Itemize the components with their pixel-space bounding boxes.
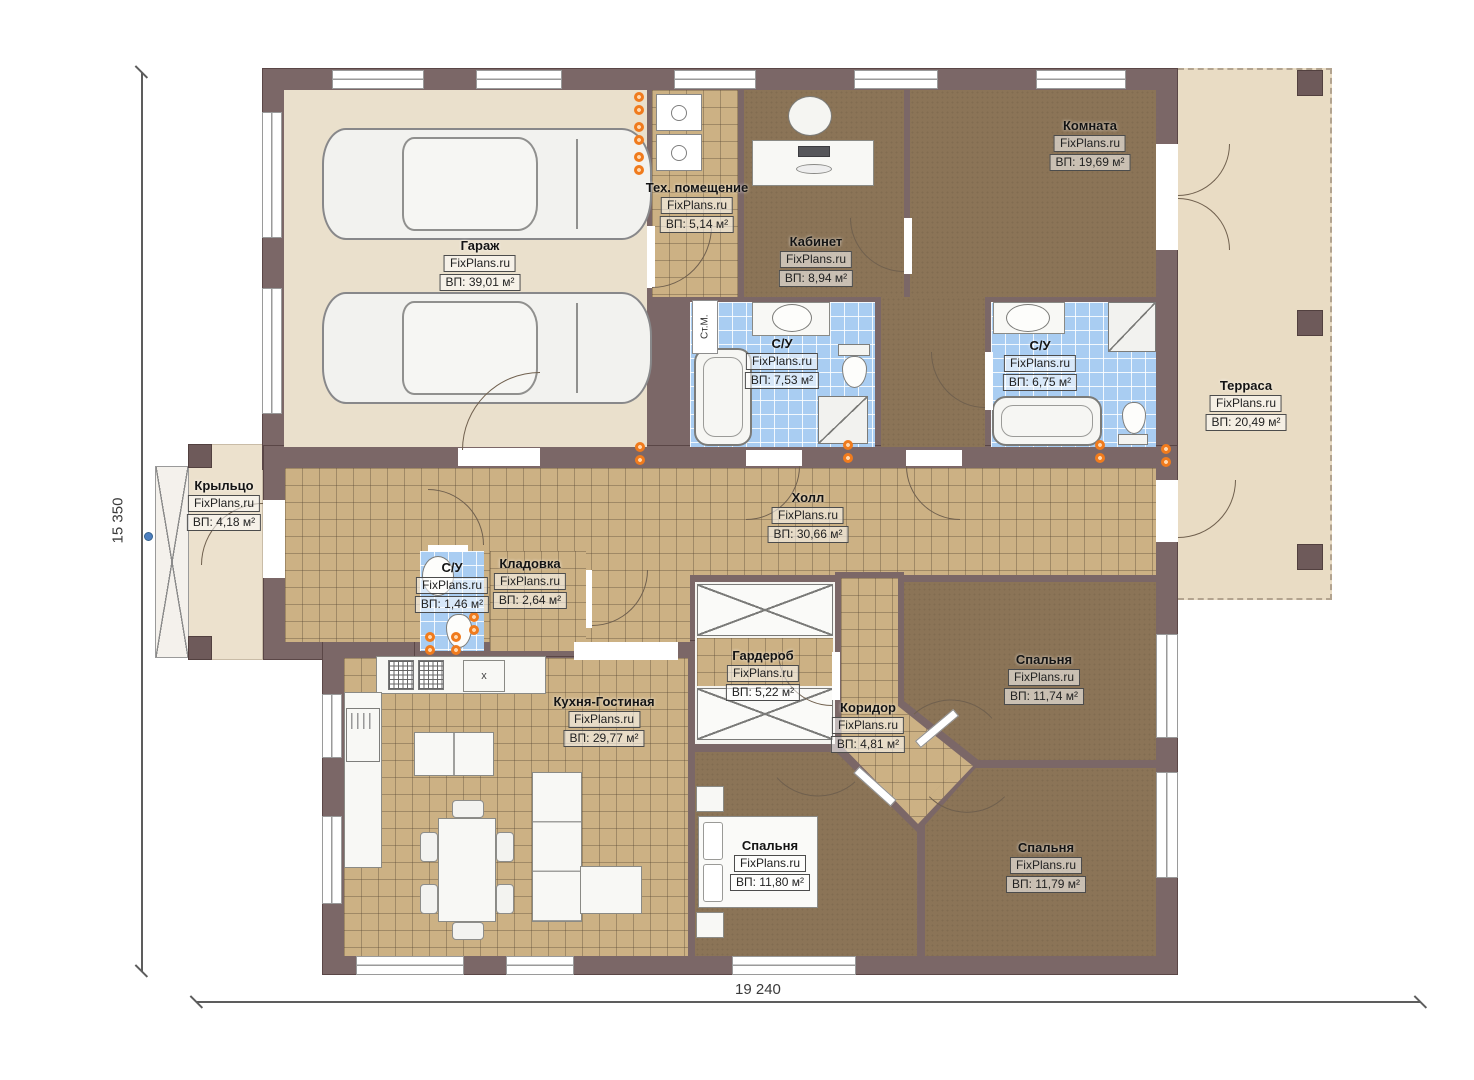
room-label-bedroom-left: Спальня FixPlans.ru ВП: 11,80 м² [730,838,810,891]
window [732,956,856,975]
room-label-kitchen-living: Кухня-Гостиная FixPlans.ru ВП: 29,77 м² [553,694,654,747]
room-label-porch: Крыльцо FixPlans.ru ВП: 4,18 м² [187,478,261,531]
sofa-icon [580,866,642,914]
chair-icon [420,884,438,914]
room-area: ВП: 5,22 м² [726,684,800,701]
window [674,70,756,89]
utility-connection-icon [631,120,647,147]
bathtub-icon [694,348,752,446]
door-opening [428,545,468,552]
room-label-room: Комната FixPlans.ru ВП: 19,69 м² [1050,118,1131,171]
chair-icon [496,884,514,914]
toilet-icon [1118,434,1148,445]
window [332,70,424,89]
door-opening [904,218,912,274]
keyboard-icon [796,164,832,174]
room-label-bedroom-right: Спальня FixPlans.ru ВП: 11,79 м² [1006,840,1086,893]
terrace-pillar [1297,544,1323,570]
room-label-bath-small: С/У FixPlans.ru ВП: 1,46 м² [415,560,489,613]
room-area: ВП: 5,14 м² [660,216,734,233]
room-name: Крыльцо [194,478,253,493]
watermark: FixPlans.ru [832,717,904,734]
utility-connection-icon [631,150,647,177]
room-area: ВП: 6,75 м² [1003,374,1077,391]
room-name: Терраса [1220,378,1272,393]
watermark: FixPlans.ru [494,573,566,590]
room-name: Гараж [461,238,500,253]
watermark: FixPlans.ru [568,711,640,728]
room-area: ВП: 20,49 м² [1206,414,1287,431]
door-opening [746,450,802,466]
room-area: ВП: 19,69 м² [1050,154,1131,171]
shower-icon [818,396,868,444]
watermark: FixPlans.ru [661,197,733,214]
washing-machine-label: Ст.М. [692,300,718,354]
kitchen-island [414,732,494,776]
chair-icon [420,832,438,862]
room-name: С/У [1029,338,1050,353]
room-hall-floor [285,468,690,642]
room-name: С/У [441,560,462,575]
monitor-icon [798,146,830,157]
room-area: ВП: 4,81 м² [831,736,905,753]
room-label-bath-main: С/У FixPlans.ru ВП: 7,53 м² [745,336,819,389]
utility-connection-icon [466,610,482,637]
door-opening [832,652,840,700]
watermark: FixPlans.ru [746,353,818,370]
room-name: Кухня-Гостиная [553,694,654,709]
utility-connection-icon [1158,442,1174,469]
watermark: FixPlans.ru [416,577,488,594]
utility-connection-icon [422,630,438,657]
sofa-icon [532,772,582,922]
window [506,956,574,975]
chair-icon [452,800,484,818]
room-label-office: Кабинет FixPlans.ru ВП: 8,94 м² [779,234,853,287]
room-area: ВП: 30,66 м² [768,526,849,543]
ramp-marker [144,532,153,541]
watermark: FixPlans.ru [1004,355,1076,372]
porch-ramp [155,466,189,658]
watermark: FixPlans.ru [1210,395,1282,412]
stove-icon [418,660,444,690]
washing-machine-icon [656,94,702,131]
floor-plan: 15 350 19 240 [0,0,1474,1080]
utility-connection-icon [448,630,464,657]
room-area: ВП: 2,64 м² [493,592,567,609]
room-label-storage: Кладовка FixPlans.ru ВП: 2,64 м² [493,556,567,609]
room-label-garage: Гараж FixPlans.ru ВП: 39,01 м² [440,238,521,291]
dining-table-icon [438,818,496,922]
room-label-wardrobe: Гардероб FixPlans.ru ВП: 5,22 м² [726,648,800,701]
room-name: Кладовка [499,556,560,571]
door-opening [906,450,962,466]
room-area: ВП: 29,77 м² [564,730,645,747]
room-label-bedroom-top: Спальня FixPlans.ru ВП: 11,74 м² [1004,652,1084,705]
room-name: Комната [1063,118,1117,133]
door-opening [458,448,540,466]
watermark: FixPlans.ru [734,855,806,872]
room-label-terrace: Терраса FixPlans.ru ВП: 20,49 м² [1206,378,1287,431]
utility-connection-icon [631,90,647,117]
watermark: FixPlans.ru [1010,857,1082,874]
shower-icon [1108,302,1156,352]
room-name: Спальня [1018,840,1074,855]
dimension-line-vertical [141,72,143,972]
utility-connection-icon [1092,438,1108,465]
door-opening [985,352,993,410]
car-icon [322,128,652,240]
nightstand-icon [696,912,724,938]
office-chair-icon [788,96,832,136]
room-area: ВП: 8,94 м² [779,270,853,287]
passage-opening [574,642,678,660]
room-area: ВП: 1,46 м² [415,596,489,613]
washing-machine-icon [656,134,702,171]
watermark: FixPlans.ru [780,251,852,268]
kitchen-sink-icon: x [463,660,505,692]
pillow-icon [703,822,723,860]
room-label-bath-second: С/У FixPlans.ru ВП: 6,75 м² [1003,338,1077,391]
wardrobe-icon [697,584,833,636]
door-opening [263,500,285,578]
chair-icon [496,832,514,862]
window [1156,634,1178,738]
terrace-pillar [1297,310,1323,336]
dimension-line-horizontal [196,1001,1420,1003]
window [322,694,342,758]
utility-connection-icon [632,440,648,467]
room-area: ВП: 7,53 м² [745,372,819,389]
stove-icon [388,660,414,690]
window [1156,772,1178,878]
window [476,70,562,89]
dimension-height-label: 15 350 [109,498,126,544]
window [1036,70,1126,89]
room-name: Гардероб [732,648,793,663]
garage-door [262,288,282,414]
fridge-icon [346,708,380,762]
room-name: С/У [771,336,792,351]
porch-pillar [188,444,212,468]
pillow-icon [703,864,723,902]
garage-door [262,112,282,238]
room-name: Кабинет [790,234,843,249]
watermark: FixPlans.ru [444,255,516,272]
terrace-pillar [1297,70,1323,96]
utility-connection-icon [840,438,856,465]
toilet-icon [838,344,870,356]
room-name: Тех. помещение [646,180,749,195]
sink-icon [772,304,812,332]
room-area: ВП: 11,79 м² [1006,876,1086,893]
room-label-corridor: Коридор FixPlans.ru ВП: 4,81 м² [831,700,905,753]
room-label-tech: Тех. помещение FixPlans.ru ВП: 5,14 м² [646,180,749,233]
window [322,816,342,904]
bathtub-icon [992,396,1102,446]
car-icon [322,292,652,404]
room-name: Спальня [742,838,798,853]
room-name: Холл [792,490,825,505]
watermark: FixPlans.ru [727,665,799,682]
nightstand-icon [696,786,724,812]
watermark: FixPlans.ru [188,495,260,512]
watermark: FixPlans.ru [772,507,844,524]
dimension-width-label: 19 240 [735,981,781,998]
room-name: Коридор [840,700,896,715]
sink-icon [1006,304,1050,332]
watermark: FixPlans.ru [1054,135,1126,152]
door-opening [1156,144,1178,250]
window [854,70,938,89]
room-area: ВП: 4,18 м² [187,514,261,531]
door-opening [1156,480,1178,542]
room-label-hall: Холл FixPlans.ru ВП: 30,66 м² [768,490,849,543]
porch-pillar [188,636,212,660]
room-name: Спальня [1016,652,1072,667]
room-area: ВП: 11,80 м² [730,874,810,891]
room-area: ВП: 39,01 м² [440,274,521,291]
window [356,956,464,975]
watermark: FixPlans.ru [1008,669,1080,686]
chair-icon [452,922,484,940]
room-area: ВП: 11,74 м² [1004,688,1084,705]
